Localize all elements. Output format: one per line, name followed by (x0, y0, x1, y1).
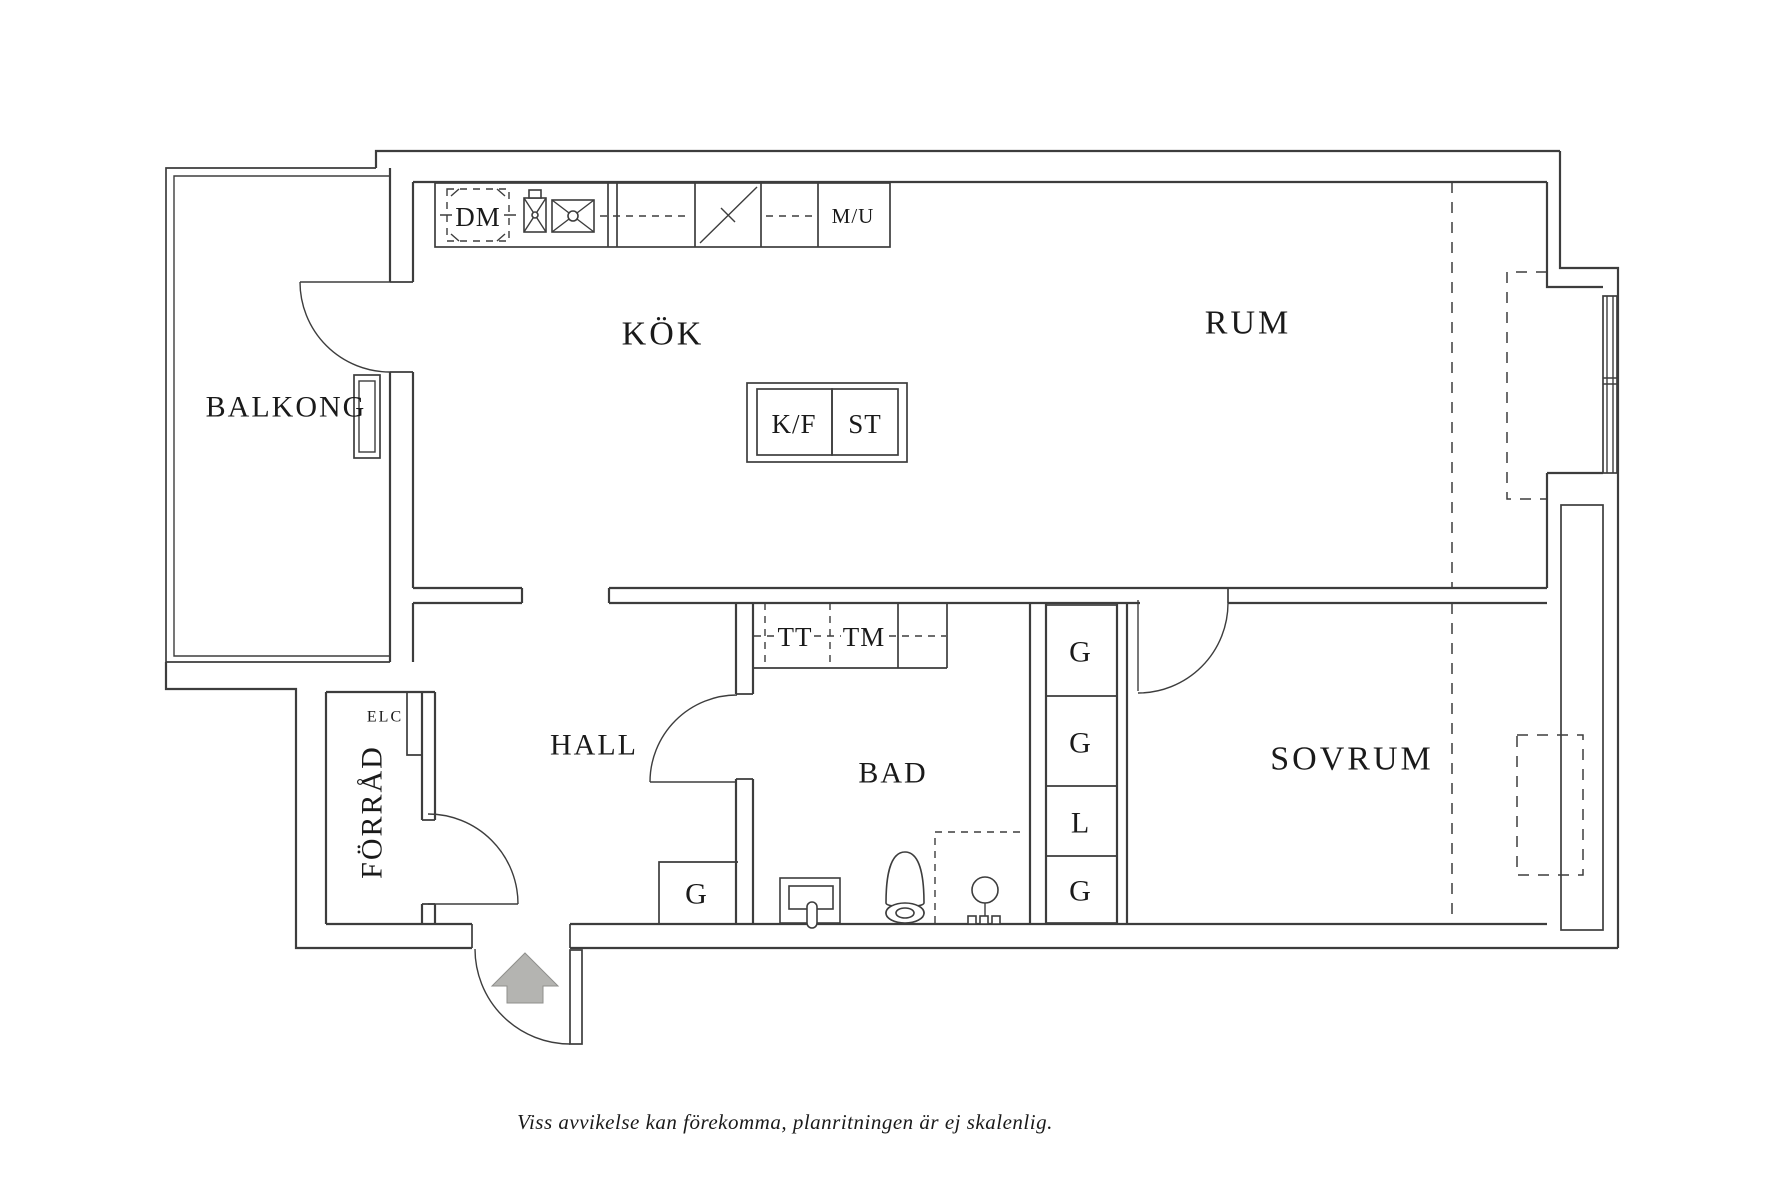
wardrobe-column: G G L G (1046, 605, 1117, 923)
balcony-door-arc (300, 282, 390, 372)
shower-mixer-icon (968, 877, 1000, 924)
room-label-forrad: FÖRRÅD (356, 745, 389, 879)
fridge-freezer-unit: K/F ST (747, 383, 907, 462)
glass-section-icon (1561, 505, 1603, 930)
room-label-balkong: BALKONG (206, 391, 367, 424)
floorplan-page: DM M/U K/F ST TT (0, 0, 1780, 1187)
room-label-kok: KÖK (622, 316, 705, 353)
room-label-hall: HALL (550, 729, 638, 762)
dryer-label: TT (778, 622, 813, 652)
hall-wardrobe: G (659, 862, 738, 924)
sink-basin-icon (552, 200, 594, 232)
disclaimer-caption: Viss avvikelse kan förekomma, planritnin… (517, 1110, 1053, 1134)
wardrobe-label: G (1069, 727, 1093, 760)
room-label-sovrum: SOVRUM (1270, 741, 1433, 778)
dishwasher-box: DM (440, 189, 516, 241)
washbasin-icon (780, 878, 840, 928)
wardrobe-label: G (1069, 875, 1093, 908)
dashed-projections (1452, 182, 1583, 924)
window-bay (1561, 296, 1617, 930)
hall-wardrobe-label: G (685, 878, 709, 911)
storage-door-arc (428, 814, 518, 904)
toilet-icon (886, 852, 924, 923)
kitchen-counter: DM M/U (435, 183, 890, 247)
shower-area (935, 832, 1025, 924)
room-label-rum: RUM (1205, 305, 1291, 342)
linen-closet-label: L (1071, 807, 1091, 840)
hob-icon (700, 187, 757, 243)
micro-oven-label: M/U (832, 204, 875, 228)
storage-room: ELC FÖRRÅD (326, 692, 435, 924)
laundry-units: TT TM (753, 603, 947, 668)
bedroom-door-arc (1138, 600, 1228, 693)
fridge-freezer-label: K/F (771, 409, 816, 439)
entrance-arrow-icon (492, 953, 558, 1003)
window-icon (1603, 296, 1617, 473)
dishwasher-label: DM (455, 202, 501, 232)
bathroom-fixtures (780, 832, 1025, 928)
washer-label: TM (843, 622, 886, 652)
electrical-cabinet-label: ELC (367, 709, 403, 726)
sink-tap-icon (524, 190, 546, 232)
bathroom-door-arc (650, 695, 737, 782)
floorplan-drawing: DM M/U K/F ST TT (0, 0, 1780, 1187)
wardrobe-label: G (1069, 636, 1093, 669)
pantry-label: ST (848, 409, 882, 439)
room-label-bad: BAD (858, 757, 927, 790)
